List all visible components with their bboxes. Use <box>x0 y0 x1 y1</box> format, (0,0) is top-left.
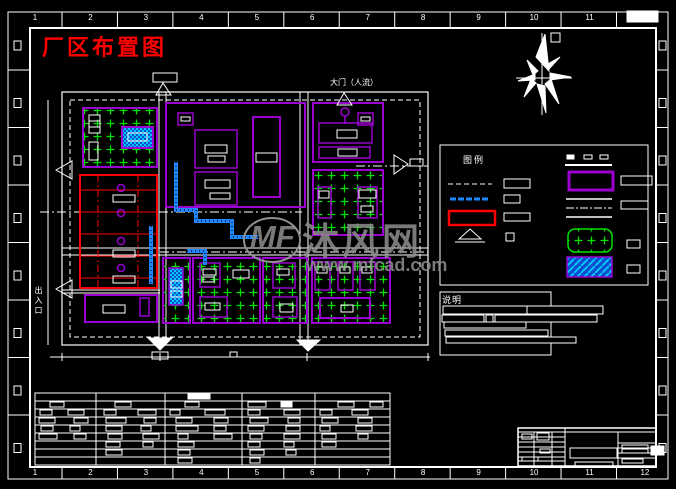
schedule_table-shape <box>106 442 120 447</box>
schedule_table-shape <box>50 402 64 407</box>
plan-shape <box>103 305 125 313</box>
plan-shape <box>210 193 230 199</box>
schedule_table-shape <box>358 418 372 423</box>
plan-shape <box>113 276 135 283</box>
north_arrow-shape <box>550 73 571 80</box>
legend-shape <box>504 195 520 203</box>
schedule_table-shape <box>284 410 300 415</box>
ruler-number-6: 6 <box>304 468 320 477</box>
ruler-number-10: 10 <box>526 13 542 22</box>
sheet-title: 厂区布置图 <box>42 30 167 62</box>
legend-shape <box>568 229 612 252</box>
legend-shape <box>621 176 652 185</box>
schedule_table-shape <box>74 434 86 439</box>
schedule_table-shape <box>370 402 383 407</box>
zone-square-right-shape <box>659 214 666 223</box>
legend-shape <box>449 211 495 225</box>
north_arrow-shape <box>551 33 560 42</box>
schedule_table-shape <box>250 434 262 439</box>
schedule_table-shape <box>70 426 80 431</box>
zone-square-left-shape <box>14 41 21 50</box>
plan-shape <box>122 127 153 148</box>
notes-shape <box>527 306 603 314</box>
zone-square-left-shape <box>14 386 21 395</box>
title_block-shape <box>651 446 664 455</box>
zone-square-left-shape <box>14 329 21 338</box>
schedule_table <box>35 393 390 465</box>
schedule_table-shape <box>358 434 368 439</box>
notes-shape <box>495 315 597 322</box>
ruler-number-2: 2 <box>82 13 98 22</box>
notes <box>440 292 603 355</box>
schedule_table-shape <box>248 402 266 407</box>
schedule_table-shape <box>106 418 126 423</box>
legend-shape <box>627 240 640 248</box>
schedule_table-shape <box>35 393 390 465</box>
ruler-number-4: 4 <box>193 13 209 22</box>
ruler-number-5: 5 <box>249 468 265 477</box>
schedule_table-shape <box>284 442 294 447</box>
plan-shape <box>208 156 225 162</box>
title_block-shape <box>622 449 648 453</box>
plan-shape <box>148 338 172 350</box>
schedule_table-shape <box>141 426 151 431</box>
schedule_table-shape <box>106 450 122 455</box>
drawing-sheet: 厂区布置图 123456789101112 123456789101112 大门… <box>0 0 676 489</box>
ruler-number-9: 9 <box>471 468 487 477</box>
plan-shape <box>394 155 408 174</box>
schedule_table-shape <box>178 434 188 439</box>
plan-shape <box>341 108 349 116</box>
schedule_table-shape <box>250 450 264 455</box>
legend-shape <box>504 179 530 188</box>
zone-square-right-shape <box>659 386 666 395</box>
schedule_table-shape <box>281 401 292 407</box>
ruler-number-6: 6 <box>304 13 320 22</box>
schedule_table-shape <box>214 418 228 423</box>
zone-square-right-shape <box>659 329 666 338</box>
schedule_table-shape <box>286 426 300 431</box>
schedule_table-shape <box>356 426 372 431</box>
plan-shape <box>263 258 307 323</box>
plan-shape <box>230 352 237 357</box>
title_block-shape <box>522 457 538 461</box>
ruler-number-4: 4 <box>193 468 209 477</box>
ruler-number-5: 5 <box>249 13 265 22</box>
ruler-number-7: 7 <box>360 468 376 477</box>
legend-shape <box>569 172 613 190</box>
schedule_table-shape <box>248 426 264 431</box>
zone-square-left-shape <box>14 271 21 280</box>
title_block-shape <box>570 448 617 458</box>
notes-shape <box>486 315 493 322</box>
schedule_table-shape <box>143 434 159 439</box>
schedule_table-shape <box>214 434 232 439</box>
schedule_table-shape <box>39 434 57 439</box>
title_block <box>518 428 664 466</box>
plan-shape <box>178 113 193 125</box>
legend-shape <box>627 265 640 273</box>
schedule_table-shape <box>322 418 338 423</box>
north_arrow-shape <box>545 79 559 104</box>
schedule_table-shape <box>178 442 194 447</box>
notes-title: 说明 <box>442 293 462 306</box>
schedule_table-shape <box>320 426 330 431</box>
ruler-number-11: 11 <box>582 13 598 22</box>
plan-shape <box>313 170 383 235</box>
schedule_table-shape <box>108 434 122 439</box>
plan-shape <box>181 117 190 121</box>
schedule_table-shape <box>288 418 300 423</box>
north_arrow-shape <box>527 60 538 75</box>
north_arrow <box>516 33 572 115</box>
ruler-number-1: 1 <box>27 468 43 477</box>
plan-shape <box>410 159 423 166</box>
side-gate-label: 出入口 <box>33 286 44 316</box>
plan-shape <box>205 145 227 153</box>
plan-shape <box>153 73 177 82</box>
schedule_table-shape <box>74 418 88 423</box>
schedule_table-shape <box>176 426 198 431</box>
ruler-number-3: 3 <box>138 468 154 477</box>
schedule_table-shape <box>104 410 116 415</box>
notes-shape <box>444 322 526 328</box>
ruler-number-2: 2 <box>82 468 98 477</box>
schedule_table-shape <box>143 442 153 447</box>
zone-square-left-shape <box>14 214 21 223</box>
schedule_table-shape <box>322 442 336 447</box>
ruler-number-11: 11 <box>582 468 598 477</box>
schedule_table-shape <box>170 410 180 415</box>
title_block-shape <box>622 459 643 463</box>
schedule_table-shape <box>352 410 368 415</box>
legend-shape <box>600 155 608 159</box>
north_arrow-shape <box>524 79 536 97</box>
zone-square-right-shape <box>659 271 666 280</box>
notes-shape <box>445 330 548 336</box>
notes-shape <box>442 315 484 322</box>
schedule_table-shape <box>115 402 131 407</box>
notes-shape <box>443 306 527 314</box>
plan-shape <box>256 153 277 162</box>
plan-shape <box>85 295 157 322</box>
legend-shape <box>440 145 648 285</box>
zone-square-right-shape <box>659 156 666 165</box>
zone-square-right-shape <box>659 99 666 108</box>
cad-drawing-graphics <box>0 0 676 489</box>
plan-shape <box>338 149 357 156</box>
zone-square-left-shape <box>14 99 21 108</box>
schedule_table-shape <box>338 402 354 407</box>
schedule_table-shape <box>250 418 268 423</box>
schedule_table-shape <box>178 450 190 455</box>
schedule_table-shape <box>39 418 55 423</box>
zone-square-left-shape <box>14 156 21 165</box>
schedule_table-shape <box>188 394 210 399</box>
schedule_table-shape <box>41 426 53 431</box>
ruler-number-12: 12 <box>637 13 653 22</box>
legend-shape <box>621 201 648 209</box>
plan-shape <box>140 298 149 316</box>
plan-shape <box>118 238 125 245</box>
ruler-number-3: 3 <box>138 13 154 22</box>
plan-shape <box>205 180 230 188</box>
ruler-number-8: 8 <box>415 13 431 22</box>
schedule_table-shape <box>68 410 84 415</box>
legend-shape <box>504 213 530 221</box>
schedule_table-shape <box>214 426 226 431</box>
plan-shape <box>156 83 171 95</box>
zone-square-left-shape <box>14 444 21 453</box>
plan-shape <box>361 117 370 121</box>
legend-title: 图例 <box>463 153 485 166</box>
main-gate-label: 大门（人流） <box>330 77 378 88</box>
legend-shape <box>567 257 612 277</box>
plan-shape <box>113 195 135 202</box>
plan-shape <box>253 117 280 197</box>
schedule_table-shape <box>248 410 260 415</box>
schedule_table-shape <box>144 418 156 423</box>
legend-shape <box>584 155 592 159</box>
schedule_table-shape <box>106 426 122 431</box>
legend-shape <box>506 233 514 241</box>
zone-square-right-shape <box>659 41 666 50</box>
schedule_table-shape <box>176 418 192 423</box>
ruler-number-1: 1 <box>27 13 43 22</box>
notes-shape <box>446 337 576 343</box>
ruler-number-7: 7 <box>360 13 376 22</box>
ruler-number-9: 9 <box>471 13 487 22</box>
schedule_table-shape <box>178 458 192 463</box>
ruler-top: 123456789101112 <box>0 13 676 27</box>
schedule_table-shape <box>138 410 156 415</box>
legend-shape <box>459 229 481 239</box>
schedule_table-shape <box>205 410 225 415</box>
plan-shape <box>319 123 372 143</box>
plan-shape <box>118 210 125 217</box>
ruler-bottom: 123456789101112 <box>0 468 676 482</box>
ruler-number-8: 8 <box>415 468 431 477</box>
plan-shape <box>337 130 357 138</box>
plan-shape <box>166 103 305 207</box>
schedule_table-shape <box>40 410 52 415</box>
ruler-number-12: 12 <box>637 468 653 477</box>
schedule_table-shape <box>185 402 199 407</box>
schedule_table-shape <box>322 434 336 439</box>
legend-shape <box>567 155 574 159</box>
schedule_table-shape <box>286 450 296 455</box>
schedule_table-shape <box>320 410 332 415</box>
plan <box>40 73 430 361</box>
legend <box>440 145 652 285</box>
plan-shape <box>118 265 125 272</box>
schedule_table-shape <box>250 458 260 463</box>
schedule_table-shape <box>248 442 260 447</box>
ruler-number-10: 10 <box>526 468 542 477</box>
schedule_table-shape <box>284 434 300 439</box>
